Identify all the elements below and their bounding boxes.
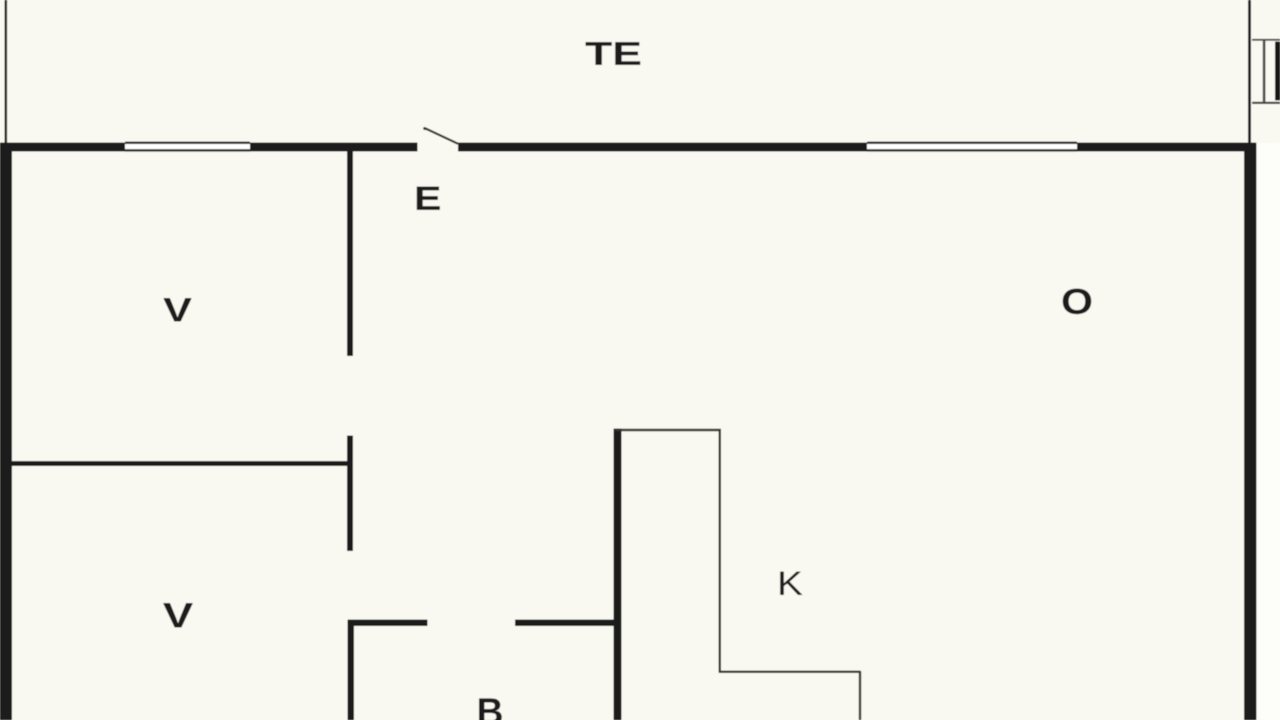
svg-text:B: B — [477, 692, 504, 720]
svg-text:E: E — [414, 180, 442, 218]
svg-text:O: O — [1061, 281, 1093, 322]
svg-text:V: V — [163, 292, 192, 330]
svg-text:TE: TE — [585, 35, 642, 72]
svg-text:K: K — [777, 565, 803, 603]
svg-text:V: V — [163, 596, 194, 636]
